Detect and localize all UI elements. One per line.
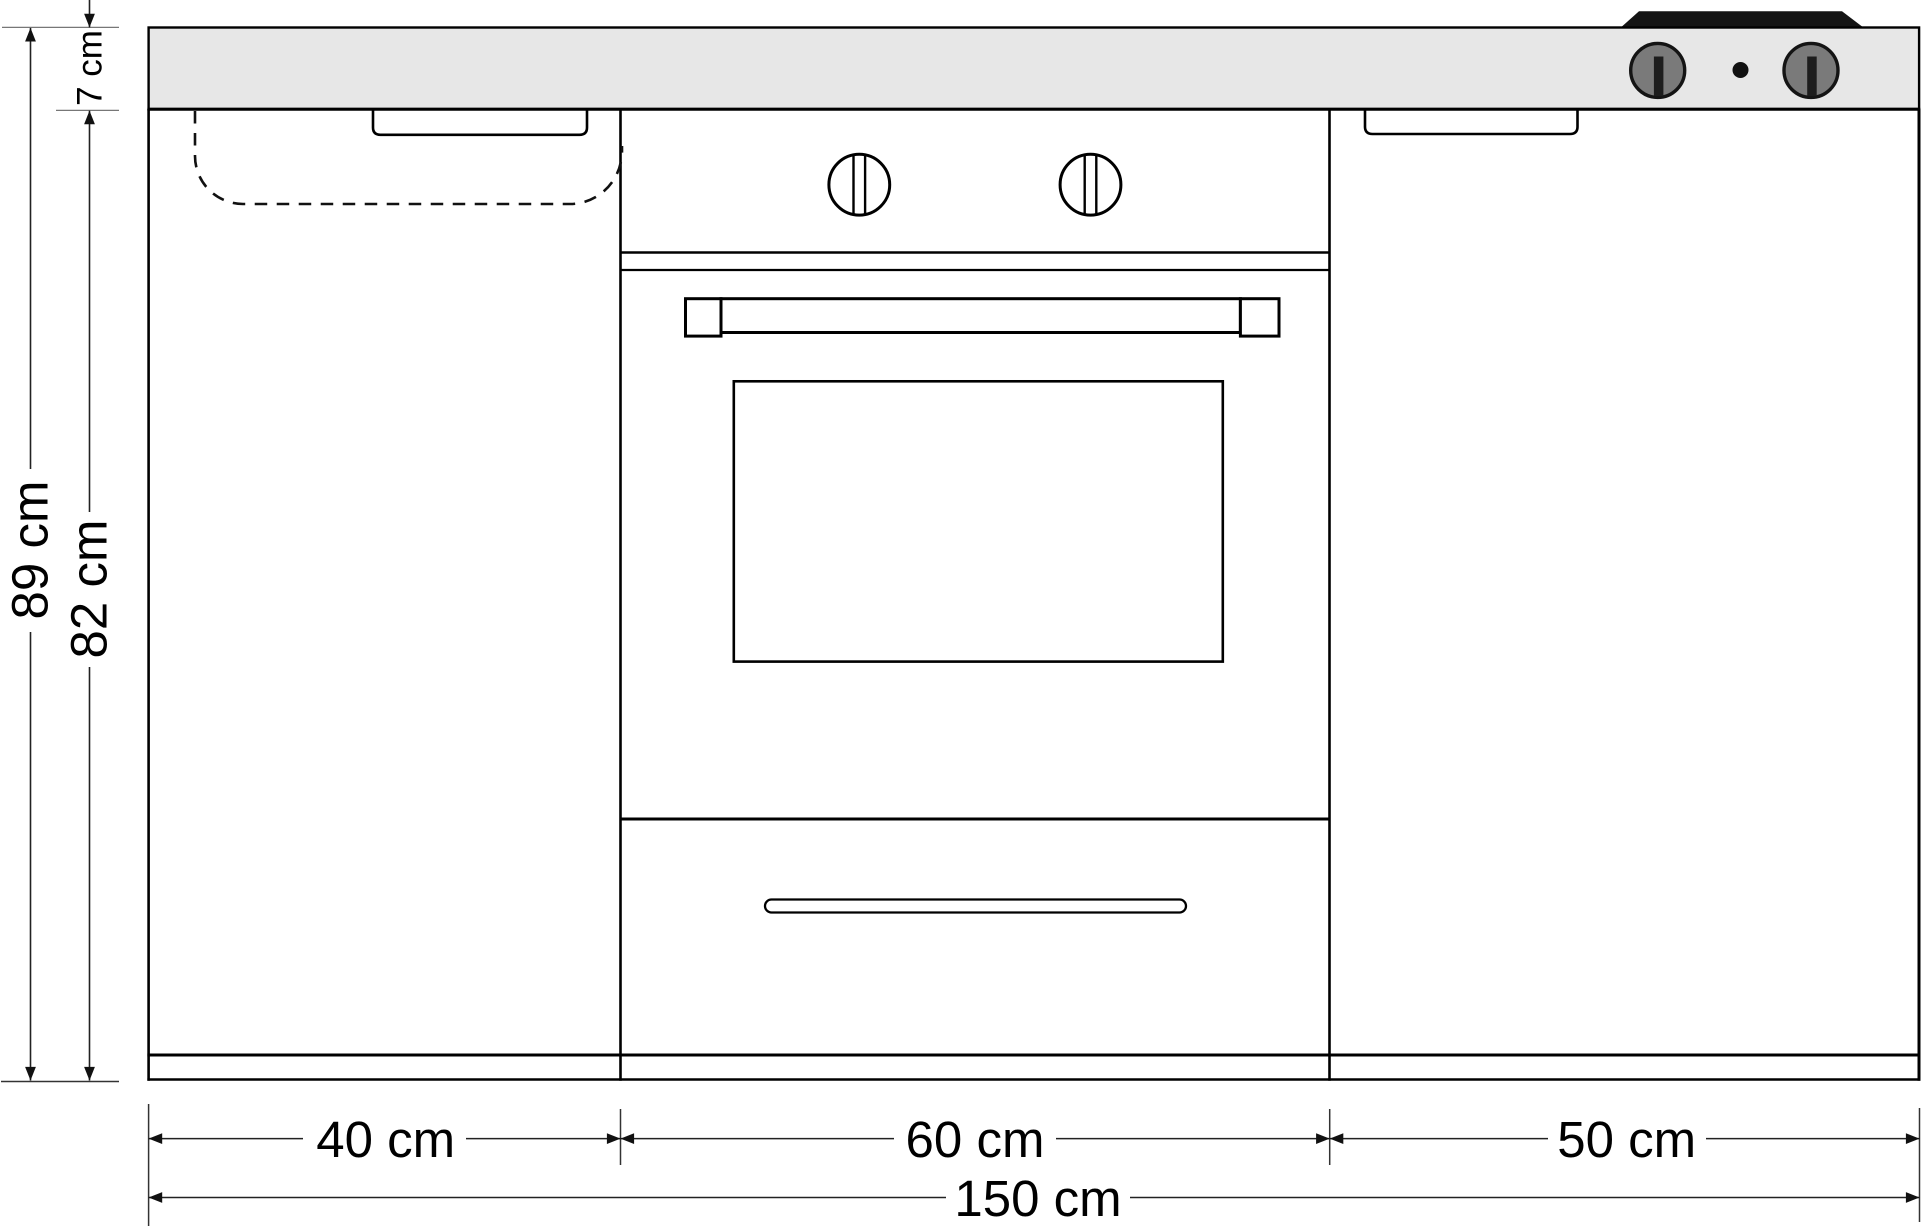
svg-text:89 cm: 89 cm <box>2 481 59 620</box>
svg-text:50 cm: 50 cm <box>1557 1111 1696 1168</box>
svg-text:7 cm: 7 cm <box>71 30 110 106</box>
svg-text:60 cm: 60 cm <box>906 1111 1045 1168</box>
svg-text:40 cm: 40 cm <box>316 1111 455 1168</box>
svg-text:150 cm: 150 cm <box>954 1170 1121 1227</box>
svg-text:82 cm: 82 cm <box>61 520 118 659</box>
